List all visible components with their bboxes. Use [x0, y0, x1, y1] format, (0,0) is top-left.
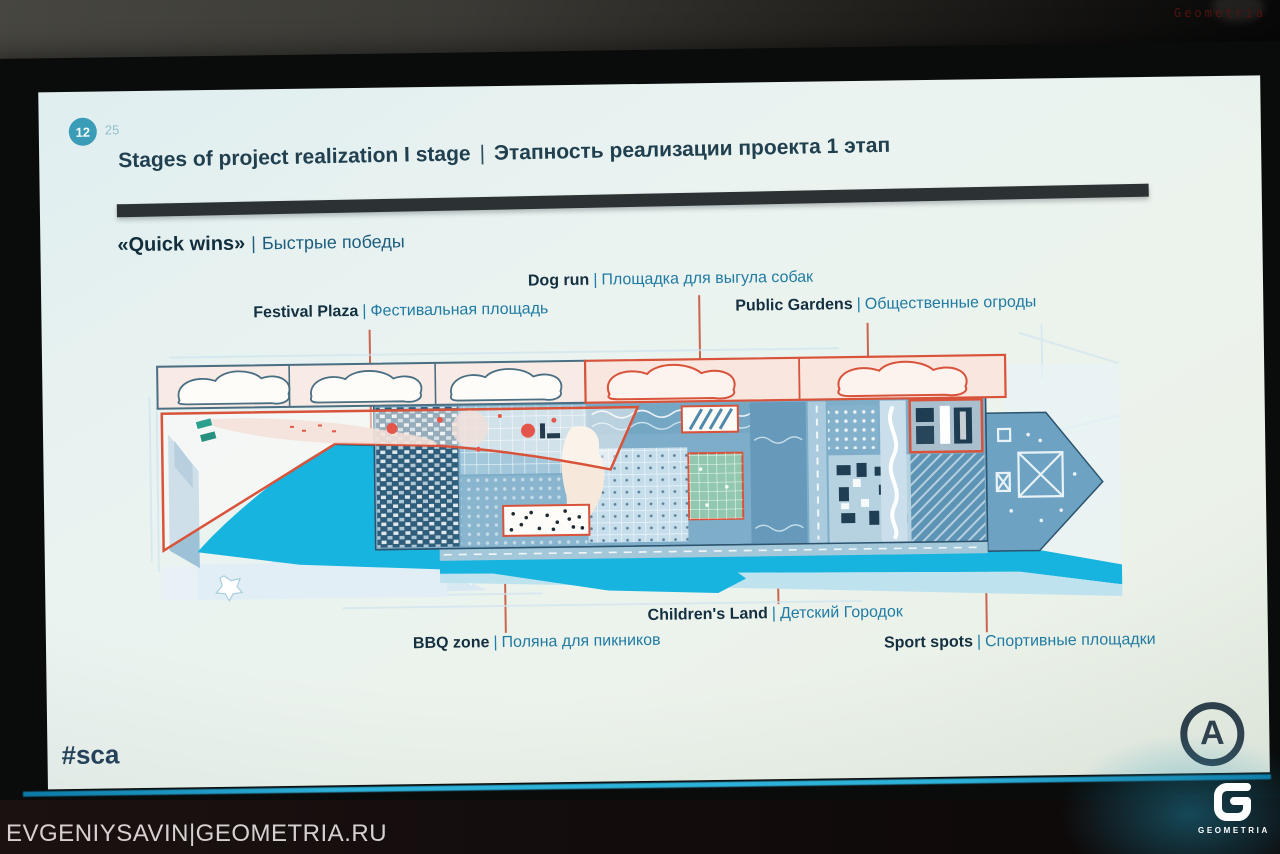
label-public-gardens-sep: | [857, 296, 861, 313]
label-sport-spots-sep: | [977, 633, 981, 650]
subtitle-ru: Быстрые победы [262, 231, 405, 253]
page-number-badge: 12 [69, 118, 97, 146]
bbq-zone-area [503, 505, 589, 536]
label-festival-plaza-sep: | [362, 303, 366, 320]
label-dog-run-sep: | [593, 272, 597, 289]
label-festival-plaza-ru: Фестивальная площадь [370, 300, 548, 319]
label-public-gardens-ru: Общественные огроды [865, 293, 1037, 312]
subtitle-separator: | [251, 233, 256, 253]
label-bbq-zone: BBQ zone|Поляна для пикников [413, 631, 661, 654]
presentation-slide: 12 25 Stages of project realization I st… [38, 75, 1270, 789]
label-bbq-zone-sep: | [493, 634, 497, 651]
geometria-logo-label: GEOMETRIA [1198, 826, 1268, 835]
slide-title-ru: Этапность реализации проекта 1 этап [494, 134, 891, 165]
geometria-logo: GEOMETRIA [1198, 780, 1268, 850]
label-festival-plaza: Festival Plaza|Фестивальная площадь [253, 299, 548, 323]
label-public-gardens-en: Public Gardens [735, 296, 853, 315]
subtitle-en: «Quick wins» [117, 233, 245, 257]
label-dog-run-ru: Площадка для выгула собак [601, 269, 813, 289]
slide-title: Stages of project realization I stage|Эт… [118, 134, 890, 173]
label-public-gardens: Public Gardens|Общественные огроды [735, 292, 1036, 316]
slide-title-en: Stages of project realization I stage [118, 142, 471, 172]
sport-spots-area [910, 399, 983, 452]
label-bbq-zone-en: BBQ zone [413, 634, 490, 652]
childrens-land-area [688, 453, 743, 520]
slide-subtitle: «Quick wins»|Быстрые победы [117, 230, 405, 257]
north-park-strip [157, 361, 586, 409]
label-dog-run-en: Dog run [528, 272, 590, 290]
title-underline-bar [117, 184, 1149, 218]
photographer-watermark: EVGENIYSAVIN|GEOMETRIA.RU [6, 820, 387, 848]
title-separator: | [479, 142, 485, 165]
label-festival-plaza-en: Festival Plaza [253, 303, 358, 321]
page-total: 25 [105, 122, 120, 137]
label-sport-spots: Sport spots|Спортивные площадки [884, 630, 1156, 654]
photo-of-presentation-screen: Geometria 12 25 Stages of project realiz… [0, 0, 1280, 854]
label-sport-spots-en: Sport spots [884, 633, 973, 651]
label-dog-run: Dog run|Площадка для выгула собак [528, 268, 813, 292]
geometria-corner-watermark: Geometria [1174, 6, 1266, 20]
site-plan-map [139, 323, 1123, 617]
public-gardens-strip [585, 355, 1006, 403]
dog-run-area [682, 406, 738, 433]
label-bbq-zone-ru: Поляна для пикников [501, 632, 660, 651]
geometria-g-icon [1211, 780, 1255, 824]
hashtag-sca: #sca [61, 739, 119, 771]
tv-screen: 12 25 Stages of project realization I st… [0, 41, 1280, 816]
label-sport-spots-ru: Спортивные площадки [985, 631, 1156, 650]
